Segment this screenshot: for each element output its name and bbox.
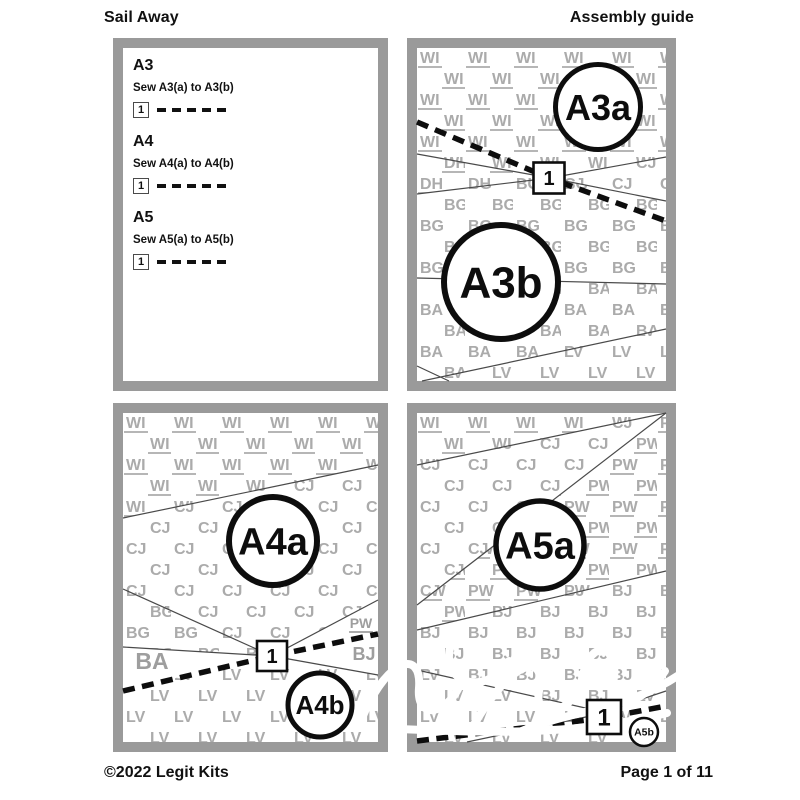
piece-circle-label-A3a: A3a: [565, 87, 632, 128]
instruction-text: Sew A4(a) to A4(b): [133, 158, 368, 170]
step-number-box: 1: [133, 102, 149, 118]
step-row: 1: [133, 102, 368, 118]
instruction-heading: A5: [133, 209, 368, 227]
seam-dash-sample: [157, 108, 229, 112]
piece-circle-label-A5a: A5a: [505, 525, 576, 567]
step-number-marker-label: 1: [543, 168, 554, 190]
piece-circle-label-A4a: A4a: [238, 521, 309, 563]
a5-diagram-svg: WIWICJCJPWPWBJBJLVLVA5aA5b1: [417, 413, 666, 742]
piece-circle-label-A5b: A5b: [634, 727, 654, 739]
footer-page-number: Page 1 of 11: [621, 764, 714, 782]
step-row: 1: [133, 254, 368, 270]
assembly-guide-page: { "header": { "title": "Sail Away", "sub…: [0, 0, 800, 800]
fabric-label-BJ: BJ: [352, 644, 375, 664]
piece-circle-label-A3b: A3b: [459, 259, 542, 308]
instruction-block-a3: A3 Sew A3(a) to A3(b) 1: [133, 57, 368, 118]
a3-diagram-panel: WIWIDHDHCJCJBGBGBABALVLVA3aA3b1: [407, 38, 676, 391]
piece-circle-label-A4b: A4b: [295, 690, 344, 720]
a4-diagram-svg: WIWICJCJBGBGLVLVBAPWBJA4aA4b1: [123, 413, 378, 742]
instruction-block-a5: A5 Sew A5(a) to A5(b) 1: [133, 209, 368, 270]
step-row: 1: [133, 178, 368, 194]
seam-dash-sample: [157, 260, 229, 264]
fabric-label-PW: PW: [350, 615, 373, 631]
instruction-text: Sew A5(a) to A5(b): [133, 234, 368, 246]
doc-subtitle: Assembly guide: [570, 9, 694, 27]
footer-copyright: ©2022 Legit Kits: [104, 764, 229, 782]
a3-diagram-svg: WIWIDHDHCJCJBGBGBABALVLVA3aA3b1: [417, 48, 666, 381]
instruction-block-a4: A4 Sew A4(a) to A4(b) 1: [133, 133, 368, 194]
instruction-text: Sew A3(a) to A3(b): [133, 82, 368, 94]
doc-title: Sail Away: [104, 9, 179, 27]
instruction-heading: A3: [133, 57, 368, 75]
seam-dash-sample: [157, 184, 229, 188]
step-number-box: 1: [133, 254, 149, 270]
a5-diagram-panel: WIWICJCJPWPWBJBJLVLVA5aA5b1: [407, 403, 676, 752]
instructions-panel: A3 Sew A3(a) to A3(b) 1 A4 Sew A4(a) to …: [113, 38, 388, 391]
step-number-marker-label: 1: [266, 646, 277, 668]
step-number-marker-label: 1: [597, 705, 610, 732]
step-number-box: 1: [133, 178, 149, 194]
a4-diagram-panel: WIWICJCJBGBGLVLVBAPWBJA4aA4b1: [113, 403, 388, 752]
instruction-heading: A4: [133, 133, 368, 151]
fabric-label-BA: BA: [135, 648, 168, 674]
